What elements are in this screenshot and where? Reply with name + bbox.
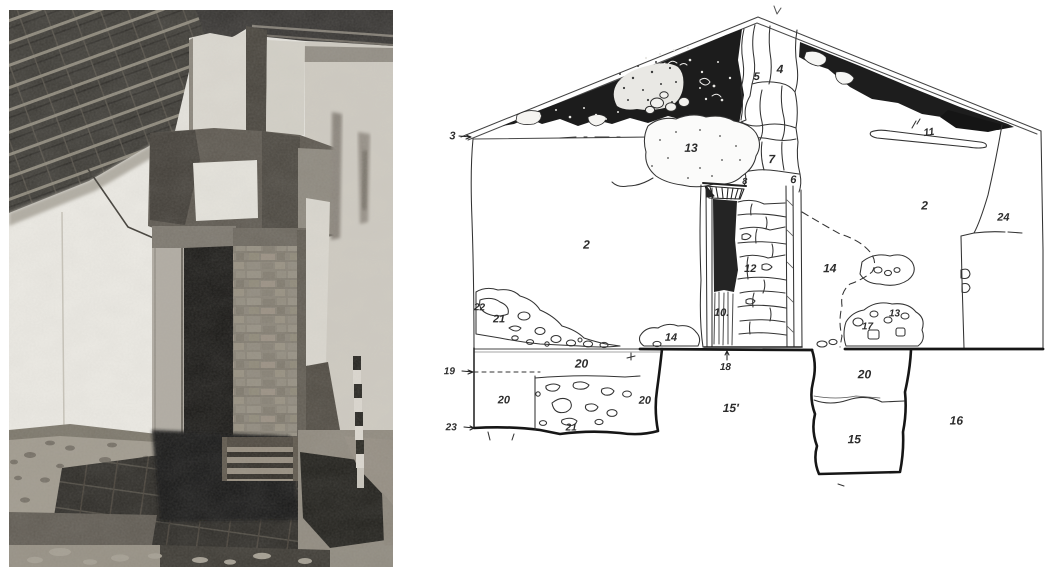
svg-text:21: 21 [565, 423, 578, 434]
svg-text:20: 20 [574, 357, 589, 371]
svg-text:2: 2 [920, 198, 928, 212]
svg-text:24: 24 [996, 212, 1009, 224]
svg-text:14: 14 [665, 332, 677, 344]
svg-text:5: 5 [754, 71, 761, 83]
svg-text:11: 11 [923, 126, 936, 139]
svg-text:17: 17 [862, 321, 874, 332]
svg-text:7: 7 [768, 152, 776, 166]
svg-text:23: 23 [445, 422, 458, 433]
svg-text:3: 3 [449, 130, 455, 142]
svg-text:6: 6 [790, 174, 797, 186]
svg-text:15′: 15′ [723, 401, 740, 415]
svg-text:13: 13 [684, 141, 698, 155]
svg-text:2: 2 [582, 238, 590, 252]
svg-text:10.: 10. [714, 307, 729, 319]
svg-text:8: 8 [742, 176, 747, 186]
svg-text:13: 13 [889, 308, 901, 319]
svg-text:4: 4 [776, 62, 784, 76]
svg-text:15: 15 [848, 432, 862, 446]
svg-text:18: 18 [720, 362, 732, 373]
svg-text:19: 19 [444, 366, 456, 377]
svg-text:16: 16 [950, 414, 964, 428]
svg-text:14: 14 [823, 261, 837, 275]
svg-text:22: 22 [473, 302, 486, 313]
svg-text:20: 20 [638, 395, 652, 407]
svg-text:20: 20 [857, 367, 872, 381]
svg-text:12: 12 [744, 263, 756, 275]
svg-text:20: 20 [497, 394, 511, 406]
svg-text:21: 21 [492, 313, 505, 325]
